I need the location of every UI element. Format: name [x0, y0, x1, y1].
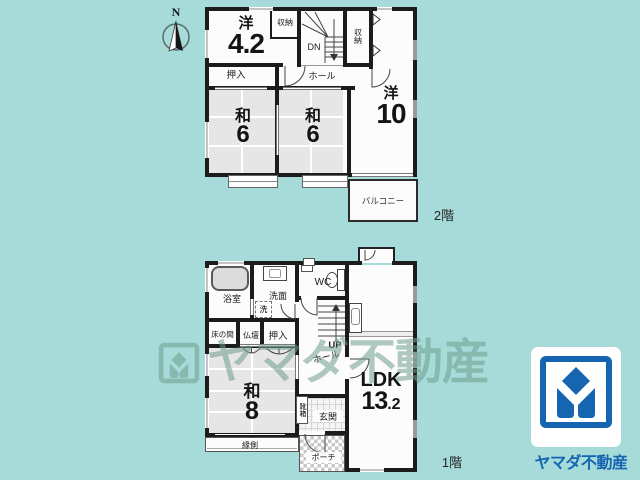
bay-window-marker [228, 175, 278, 188]
entrance-label: 玄関 [313, 410, 343, 422]
sliding-door-line [215, 434, 285, 435]
wc-shelf-icon [301, 265, 313, 272]
window-marker [360, 468, 384, 472]
wall-segment [325, 431, 345, 435]
hall-label: ホール [299, 69, 345, 82]
window-marker [205, 398, 209, 428]
closet-label: 収納 [349, 18, 367, 54]
north-label: N [165, 5, 187, 19]
window-marker-gray [413, 286, 417, 303]
washstand-label: 洗面 [261, 289, 295, 301]
window-marker [249, 7, 273, 11]
floor1-label: 1階 [435, 453, 469, 470]
folding-door-icon [372, 13, 381, 26]
sink-basin-icon [269, 269, 281, 278]
window-marker [205, 122, 209, 158]
double-door-swing-icon [241, 346, 262, 358]
shoe-box: 靴箱 [296, 396, 308, 424]
fusuma-slider [283, 87, 341, 90]
bay-window-marker [302, 175, 348, 188]
oshiire-label: 押入 [214, 67, 258, 81]
window-marker-gray [413, 420, 417, 438]
window-marker [205, 268, 209, 292]
tokonoma-label: 床の間 [206, 329, 239, 340]
wc-label: WC [311, 276, 335, 289]
door-swing-icon [300, 297, 318, 316]
room-label-ldk: LDK 13 .2 [352, 368, 410, 416]
engawa-label: 縁側 [238, 440, 262, 450]
closet-label: 収納 [271, 16, 299, 28]
kitchen-sink-basin-icon [351, 308, 360, 325]
door-swing-icon [280, 303, 296, 320]
window-marker-gray [413, 40, 417, 60]
window-marker [377, 7, 392, 11]
sliding-door [250, 299, 254, 315]
door-swing-icon [364, 249, 378, 261]
fusuma-slider [295, 355, 299, 379]
watermark-logo-icon [156, 340, 202, 386]
washing-machine-slot: 洗 [255, 301, 272, 318]
shoe-box-label: 靴箱 [297, 403, 307, 417]
wall-segment [347, 86, 351, 173]
porch-label: ポーチ [306, 452, 341, 463]
floor2-label: 2階 [429, 206, 459, 222]
window-marker [218, 261, 244, 265]
room-label-wa6-right: 和 6 [295, 100, 331, 156]
window-marker [205, 30, 209, 58]
window-marker [205, 354, 209, 376]
floorplan-page: N [0, 0, 640, 480]
compass-icon [160, 18, 192, 54]
company-logo [531, 347, 621, 447]
bath-label: 浴室 [215, 292, 249, 304]
fusuma-slider [215, 87, 267, 90]
wall-segment [343, 63, 373, 67]
fusuma-slider [276, 105, 279, 155]
balcony-label: バルコニー [352, 195, 414, 206]
window-marker-gray [413, 352, 417, 368]
bathtub-icon [211, 266, 249, 291]
room-label-wa8: 和 8 [234, 378, 270, 430]
butsudan-label: 仏壇 [239, 329, 263, 341]
stair-dn-label: DN [303, 41, 325, 52]
room-label-yo10: 洋 10 [368, 78, 414, 136]
balcony-glass-door [352, 173, 413, 177]
company-logo-text: ヤマダ不動産 [528, 449, 634, 467]
oshiire-label: 押入 [262, 328, 294, 341]
laundry-label: 洗 [260, 304, 268, 315]
stair-edge-line [301, 65, 343, 66]
company-logo-icon [531, 347, 621, 447]
toilet-tank-icon [337, 269, 345, 291]
room-label-wa6-left: 和 6 [225, 100, 261, 156]
staircase-2f-icon [301, 11, 343, 63]
double-door-swing-icon [264, 346, 295, 360]
wall-segment [343, 11, 347, 63]
folding-door-icon [372, 44, 381, 57]
